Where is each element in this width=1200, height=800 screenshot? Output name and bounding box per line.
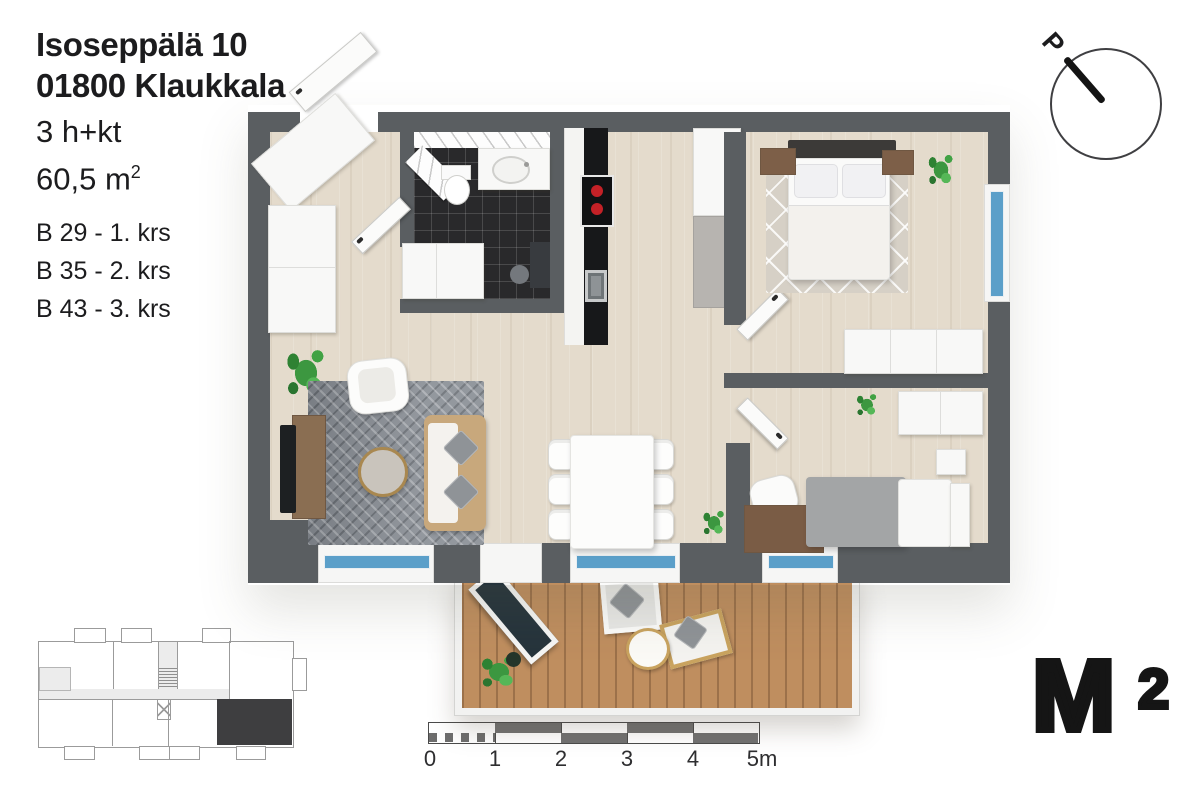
bed-blanket bbox=[789, 205, 889, 279]
compass-north-label: P bbox=[1035, 26, 1070, 60]
bedroom1-plant bbox=[920, 145, 962, 195]
area-superscript: 2 bbox=[131, 162, 141, 182]
wall-bottom bbox=[838, 543, 1010, 583]
apartment-area: 60,5 m2 bbox=[36, 152, 141, 199]
balcony-tab bbox=[202, 628, 231, 643]
stairs bbox=[158, 667, 177, 687]
armchair bbox=[345, 356, 410, 416]
scale-tick-label: 2 bbox=[555, 746, 567, 772]
floor-plan-poster: Isoseppälä 10 01800 Klaukkala 3 h+kt 60,… bbox=[0, 0, 1200, 800]
bedroom-divider-wall bbox=[724, 373, 988, 388]
stove bbox=[580, 175, 614, 227]
bedside-table bbox=[950, 483, 970, 547]
balcony-tab bbox=[121, 628, 152, 643]
unit-divider bbox=[229, 641, 230, 699]
wall-right bbox=[988, 302, 1010, 583]
shower-glass-panel bbox=[530, 242, 550, 288]
apartment-type: 3 h+kt bbox=[36, 112, 141, 152]
unit-divider bbox=[112, 699, 113, 746]
unit-list: B 29 - 1. krs B 35 - 2. krs B 43 - 3. kr… bbox=[36, 214, 171, 328]
scale-segment bbox=[561, 723, 628, 743]
unit-divider bbox=[158, 641, 159, 689]
compass: P bbox=[1048, 28, 1168, 163]
unit-item: B 43 - 3. krs bbox=[36, 290, 171, 328]
balcony-tab bbox=[74, 628, 106, 643]
m2-logo: M 2 bbox=[1032, 640, 1200, 770]
coffee-table bbox=[358, 447, 408, 497]
dining-table bbox=[570, 435, 654, 549]
bathroom-glass-wall-top bbox=[414, 132, 550, 148]
living-room-window bbox=[324, 555, 430, 569]
bathroom-vanity bbox=[478, 148, 550, 190]
corridor-line bbox=[38, 699, 230, 700]
page-title: Isoseppälä 10 01800 Klaukkala bbox=[36, 24, 285, 106]
balcony bbox=[455, 568, 859, 715]
bedroom2-wardrobe bbox=[898, 391, 983, 435]
bed-pillow bbox=[794, 164, 838, 198]
bedroom1-window bbox=[990, 191, 1004, 297]
kitchen-counter bbox=[584, 128, 608, 345]
scale-tick-label: 3 bbox=[621, 746, 633, 772]
scale-tick-label: 5m bbox=[747, 746, 778, 772]
nightstand bbox=[760, 148, 796, 175]
unit-divider bbox=[177, 641, 178, 689]
kitchen-cabinets bbox=[564, 128, 584, 345]
toilet-bowl bbox=[444, 175, 470, 205]
faucet bbox=[524, 162, 529, 167]
balcony-table bbox=[626, 628, 670, 670]
unit-item: B 35 - 2. krs bbox=[36, 252, 171, 290]
scale-tick-label: 1 bbox=[489, 746, 501, 772]
burner bbox=[591, 185, 603, 197]
bedroom1-wardrobe bbox=[844, 329, 983, 374]
highlighted-unit bbox=[217, 699, 292, 745]
hallway-wall bbox=[724, 132, 746, 325]
kitchen-sink bbox=[585, 270, 607, 302]
washing-machine-cabinet bbox=[402, 243, 484, 299]
balcony-tab bbox=[139, 746, 200, 760]
tv-console bbox=[292, 415, 326, 519]
balcony-tab bbox=[292, 658, 307, 691]
single-bed-pillow bbox=[898, 479, 952, 547]
bathroom-wall bbox=[400, 299, 564, 313]
elevator bbox=[157, 699, 171, 720]
bedroom2-plant bbox=[850, 387, 884, 423]
bathroom-wall bbox=[400, 132, 414, 247]
unit-divider bbox=[113, 641, 114, 689]
bathroom-wall bbox=[550, 132, 564, 313]
bedroom2-window bbox=[768, 555, 834, 569]
apartment-floor-plan bbox=[248, 105, 1010, 585]
nightstand bbox=[882, 150, 914, 175]
scale-segment bbox=[627, 723, 694, 743]
apartment-summary: 3 h+kt 60,5 m2 bbox=[36, 112, 141, 199]
wall-pier bbox=[542, 543, 570, 583]
logo-superscript: 2 bbox=[1138, 656, 1169, 721]
tv bbox=[280, 425, 296, 513]
logo-letter: M bbox=[1032, 640, 1111, 752]
sink-basin bbox=[492, 156, 530, 184]
entry-sideboard bbox=[268, 205, 336, 333]
scale-segment bbox=[495, 723, 562, 743]
sofa bbox=[424, 415, 486, 531]
scale-bar-track bbox=[428, 722, 760, 744]
building-location-map bbox=[25, 615, 325, 775]
radiator bbox=[936, 449, 966, 475]
double-bed bbox=[788, 158, 890, 280]
single-bed bbox=[806, 477, 906, 547]
wall-pier bbox=[434, 543, 480, 583]
balcony-tab bbox=[64, 746, 95, 760]
bed-headboard bbox=[788, 140, 896, 160]
scale-segment bbox=[693, 723, 758, 743]
burner bbox=[591, 203, 603, 215]
scale-tick-label: 4 bbox=[687, 746, 699, 772]
storage-room bbox=[39, 667, 71, 691]
address-line-1: Isoseppälä 10 bbox=[36, 24, 285, 65]
scale-segment bbox=[429, 723, 496, 743]
scale-tick-label: 0 bbox=[424, 746, 436, 772]
unit-item: B 29 - 1. krs bbox=[36, 214, 171, 252]
bed-pillow bbox=[842, 164, 886, 198]
address-line-2: 01800 Klaukkala bbox=[36, 65, 285, 106]
wall-right bbox=[988, 112, 1010, 184]
balcony-tab bbox=[236, 746, 266, 760]
dining-window bbox=[576, 555, 676, 569]
balcony-door-threshold bbox=[480, 543, 542, 583]
plant-pot bbox=[506, 652, 521, 667]
bath-stool bbox=[510, 265, 529, 284]
scale-bar: 0 1 2 3 4 5m bbox=[428, 716, 768, 768]
